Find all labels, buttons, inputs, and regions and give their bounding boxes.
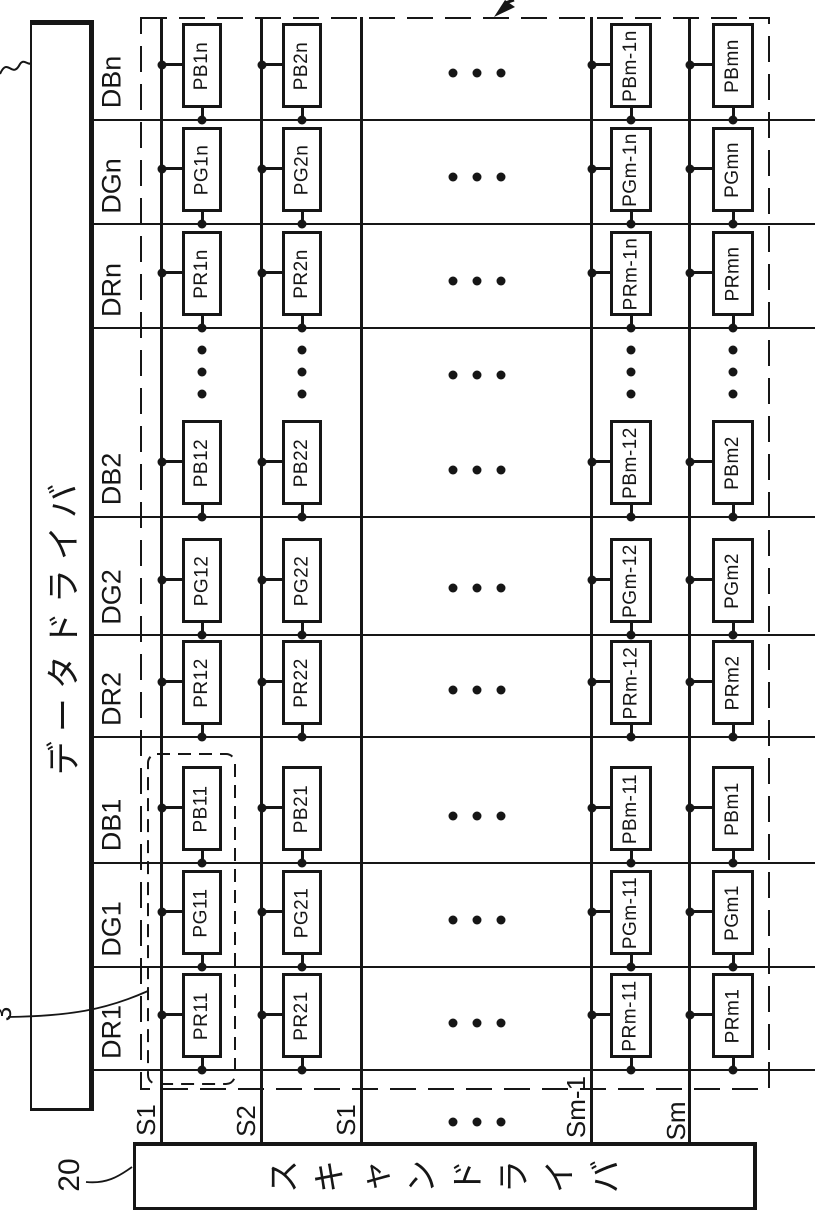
scan-driver-char: イ (543, 1160, 576, 1193)
ellipsis-dot (449, 173, 458, 182)
junction-dot (627, 513, 636, 522)
pixel-box: PBm-11 (610, 766, 652, 851)
junction-dot (198, 631, 207, 640)
pixel-box-label: PG11 (191, 888, 213, 937)
junction-dot (158, 458, 167, 467)
ref-20-leader-line (86, 1167, 132, 1182)
pixel-box-label: PRm-11 (620, 980, 642, 1051)
data-line-label: DB2 (99, 453, 126, 506)
ellipsis-dot (449, 371, 458, 380)
ellipsis-dot (449, 916, 458, 925)
junction-dot (627, 116, 636, 125)
pixel-box-label: PG22 (291, 555, 313, 606)
ellipsis-dot (497, 69, 506, 78)
patent-pixel-matrix-figure: DBnDGnDRnDB2DG2DR2DB1DG1DR1S1S2S1Sm-1SmP… (0, 0, 815, 1210)
pixel-box-label: PRm-1n (620, 237, 642, 310)
junction-dot (588, 269, 597, 278)
scan-driver-char: バ (589, 1160, 622, 1193)
junction-dot (258, 576, 267, 585)
ellipsis-dot (473, 69, 482, 78)
junction-dot (729, 1066, 738, 1075)
pixel-box-label: PGm-11 (620, 876, 642, 948)
ellipsis-dot (473, 812, 482, 821)
junction-dot (258, 678, 267, 687)
ellipsis-dot (298, 368, 307, 377)
pixel-box-label: PG1n (191, 144, 213, 195)
junction-dot (686, 61, 695, 70)
pixel-box-label: PBm-1n (620, 30, 642, 102)
pixel-box: PRm-1n (610, 231, 652, 316)
junction-dot (258, 1011, 267, 1020)
junction-dot (686, 576, 695, 585)
junction-dot (729, 324, 738, 333)
pixel-box-label: PBm2 (722, 436, 744, 490)
scan-driver-box: スキャンドライバ (133, 1142, 757, 1210)
junction-dot (729, 220, 738, 229)
junction-dot (627, 631, 636, 640)
pixel-area-pointer-arrow-icon (494, 0, 515, 17)
pixel-box: PBm-12 (610, 420, 652, 505)
ellipsis-dot (497, 584, 506, 593)
junction-dot (588, 678, 597, 687)
junction-dot (588, 1011, 597, 1020)
junction-dot (298, 733, 307, 742)
ellipsis-dot (627, 346, 636, 355)
junction-dot (588, 61, 597, 70)
pixel-box: PR12 (182, 640, 222, 725)
scan-line (360, 17, 363, 1142)
ellipsis-dot (449, 1019, 458, 1028)
junction-dot (198, 513, 207, 522)
pixel-box-label: PRm-12 (620, 646, 642, 719)
ellipsis-dot (449, 812, 458, 821)
junction-dot (298, 116, 307, 125)
pixel-box-label: PR2n (291, 249, 313, 299)
ellipsis-dot (497, 1019, 506, 1028)
pixel-box-label: PRm2 (722, 655, 744, 710)
ellipsis-dot (473, 584, 482, 593)
junction-dot (686, 458, 695, 467)
ellipsis-dot (473, 1019, 482, 1028)
data-driver-label: データドライバ (36, 475, 85, 775)
junction-dot (686, 165, 695, 174)
junction-dot (627, 220, 636, 229)
pixel-box-label: PG2n (291, 144, 313, 195)
ellipsis-dot (473, 686, 482, 695)
pixel-box: PGm-11 (610, 870, 652, 955)
scan-driver-label: スキャンドライバ (136, 1146, 753, 1207)
junction-dot (198, 859, 207, 868)
ellipsis-dot (298, 346, 307, 355)
junction-dot (686, 1011, 695, 1020)
pixel-box: PRm-12 (610, 640, 652, 725)
pixel-box: PGmn (712, 127, 754, 212)
pixel-box: PR11 (182, 973, 222, 1058)
pixel-box-label: PGm1 (722, 885, 744, 941)
ellipsis-dot (627, 390, 636, 399)
ellipsis-dot (198, 368, 207, 377)
scan-line-label: S1 (133, 1104, 159, 1136)
scan-line-label: S1 (333, 1104, 359, 1136)
pixel-box-label: PBmn (722, 39, 744, 93)
pixel-box: PB21 (282, 766, 322, 851)
junction-dot (729, 513, 738, 522)
junction-dot (588, 908, 597, 917)
pixel-box-label: PR21 (291, 991, 313, 1041)
junction-dot (588, 165, 597, 174)
ellipsis-dot (298, 390, 307, 399)
pixel-box: PGm2 (712, 538, 754, 623)
scan-driver-char: ャ (359, 1160, 392, 1193)
pixel-box: PRm2 (712, 640, 754, 725)
pixel-box: PR2n (282, 231, 322, 316)
pixel-box: PR21 (282, 973, 322, 1058)
pixel-box: PG12 (182, 538, 222, 623)
pixel-box: PR22 (282, 640, 322, 725)
data-line-label: DBn (99, 56, 126, 109)
pixel-box-label: PR22 (291, 658, 313, 708)
junction-dot (198, 733, 207, 742)
ellipsis-dot (497, 686, 506, 695)
junction-dot (298, 631, 307, 640)
junction-dot (686, 908, 695, 917)
junction-dot (258, 908, 267, 917)
pixel-box: PB12 (182, 420, 222, 505)
ellipsis-dot (449, 466, 458, 475)
junction-dot (298, 1066, 307, 1075)
ellipsis-dot (473, 371, 482, 380)
ellipsis-dot (449, 277, 458, 286)
ellipsis-dot (497, 371, 506, 380)
scan-line-label: S2 (233, 1105, 259, 1137)
junction-dot (258, 165, 267, 174)
pixel-box: PB1n (182, 23, 222, 108)
junction-dot (627, 963, 636, 972)
junction-dot (158, 678, 167, 687)
pixel-box-label: PB21 (291, 784, 313, 832)
ellipsis-dot (473, 173, 482, 182)
pixel-box-label: PR12 (191, 658, 213, 708)
data-line-label: DR2 (99, 672, 126, 726)
data-line-label: DG2 (99, 569, 126, 625)
ellipsis-dot (473, 277, 482, 286)
junction-dot (686, 269, 695, 278)
ref-3-label: 3 (0, 1007, 15, 1021)
pixel-box: PG2n (282, 127, 322, 212)
junction-dot (158, 1011, 167, 1020)
junction-dot (198, 324, 207, 333)
pixel-box-label: PB22 (291, 438, 313, 486)
pixel-box-label: PBm-12 (620, 427, 642, 499)
ellipsis-dot (497, 812, 506, 821)
ellipsis-dot (497, 1118, 506, 1127)
ellipsis-dot (729, 346, 738, 355)
junction-dot (627, 1066, 636, 1075)
pixel-box: PBm2 (712, 420, 754, 505)
data-line-label: DRn (99, 263, 126, 317)
scan-line-label: Sm (663, 1102, 689, 1141)
ellipsis-dot (627, 368, 636, 377)
data-driver-leader-squiggle (0, 62, 31, 74)
pixel-box-label: PG12 (191, 555, 213, 606)
pixel-box: PG1n (182, 127, 222, 212)
pointer-arrow-tail (505, 0, 514, 3)
pixel-box-label: PR1n (191, 249, 213, 299)
pixel-box-label: PRm1 (722, 988, 744, 1043)
scan-driver-char: ラ (497, 1160, 530, 1193)
ellipsis-dot (473, 466, 482, 475)
pixel-box: PG21 (282, 870, 322, 955)
junction-dot (158, 576, 167, 585)
data-line-label: DG1 (99, 901, 126, 957)
junction-dot (298, 220, 307, 229)
junction-dot (729, 859, 738, 868)
junction-dot (298, 963, 307, 972)
pixel-box: PBm1 (712, 766, 754, 851)
junction-dot (158, 165, 167, 174)
ellipsis-dot (473, 916, 482, 925)
pixel-box-label: PGmn (722, 142, 744, 198)
pixel-box-label: PGm-12 (620, 544, 642, 618)
junction-dot (627, 324, 636, 333)
junction-dot (258, 269, 267, 278)
pixel-box-label: PBm-11 (620, 773, 642, 843)
pixel-box: PB11 (182, 766, 222, 851)
pixel-box-label: PB2n (291, 41, 313, 89)
junction-dot (158, 908, 167, 917)
junction-dot (627, 733, 636, 742)
pixel-box-label: PR11 (191, 991, 213, 1039)
scan-driver-char: キ (313, 1160, 346, 1193)
pixel-box: PGm-12 (610, 538, 652, 623)
pixel-box: PB22 (282, 420, 322, 505)
ellipsis-dot (449, 69, 458, 78)
pixel-box-label: PBm1 (722, 782, 744, 836)
pixel-box: PBm-1n (610, 23, 652, 108)
pixel-box: PR1n (182, 231, 222, 316)
ellipsis-dot (449, 686, 458, 695)
scan-driver-char: ス (267, 1160, 300, 1193)
junction-dot (198, 963, 207, 972)
ellipsis-dot (473, 1118, 482, 1127)
ellipsis-dot (449, 584, 458, 593)
pixel-box: PBmn (712, 23, 754, 108)
pixel-box-label: PB11 (191, 785, 213, 832)
data-line-label: DGn (99, 158, 126, 214)
junction-dot (158, 269, 167, 278)
pixel-box: PG22 (282, 538, 322, 623)
junction-dot (729, 116, 738, 125)
junction-dot (198, 220, 207, 229)
junction-dot (158, 61, 167, 70)
junction-dot (258, 61, 267, 70)
junction-dot (729, 733, 738, 742)
pixel-box-label: PGm2 (722, 553, 744, 609)
junction-dot (258, 458, 267, 467)
pixel-box: PRm-11 (610, 973, 652, 1058)
pixel-box-label: PRmn (722, 246, 744, 301)
data-line-label: DB1 (99, 799, 126, 852)
junction-dot (258, 804, 267, 813)
pixel-box: PRmn (712, 231, 754, 316)
scan-line-label: Sm-1 (563, 1076, 589, 1138)
junction-dot (158, 804, 167, 813)
data-line-label: DR1 (99, 1005, 126, 1059)
pixel-box-label: PGm-1n (620, 133, 642, 207)
junction-dot (298, 513, 307, 522)
ellipsis-dot (729, 390, 738, 399)
junction-dot (298, 324, 307, 333)
scan-driver-char: ド (451, 1160, 484, 1193)
pixel-box: PGm-1n (610, 127, 652, 212)
ellipsis-dot (729, 368, 738, 377)
pixel-box-label: PG21 (291, 887, 313, 938)
junction-dot (686, 804, 695, 813)
ellipsis-dot (497, 277, 506, 286)
junction-dot (686, 678, 695, 687)
junction-dot (588, 458, 597, 467)
junction-dot (729, 963, 738, 972)
junction-dot (588, 804, 597, 813)
junction-dot (198, 116, 207, 125)
junction-dot (298, 859, 307, 868)
ellipsis-dot (198, 390, 207, 399)
junction-dot (198, 1066, 207, 1075)
pixel-box: PRm1 (712, 973, 754, 1058)
pixel-box: PG11 (182, 870, 222, 955)
junction-dot (588, 576, 597, 585)
pixel-box: PB2n (282, 23, 322, 108)
scan-driver-char: ン (405, 1160, 438, 1193)
ellipsis-dot (497, 466, 506, 475)
ref-20-label: 20 (55, 1158, 85, 1191)
ellipsis-dot (497, 173, 506, 182)
ellipsis-dot (449, 1118, 458, 1127)
junction-dot (627, 859, 636, 868)
data-driver-box: データドライバ (30, 20, 94, 1111)
junction-dot (729, 631, 738, 640)
pixel-box-label: PB1n (191, 41, 213, 89)
pixel-box: PGm1 (712, 870, 754, 955)
pixel-box-label: PB12 (191, 438, 213, 486)
ellipsis-dot (497, 916, 506, 925)
ellipsis-dot (198, 346, 207, 355)
